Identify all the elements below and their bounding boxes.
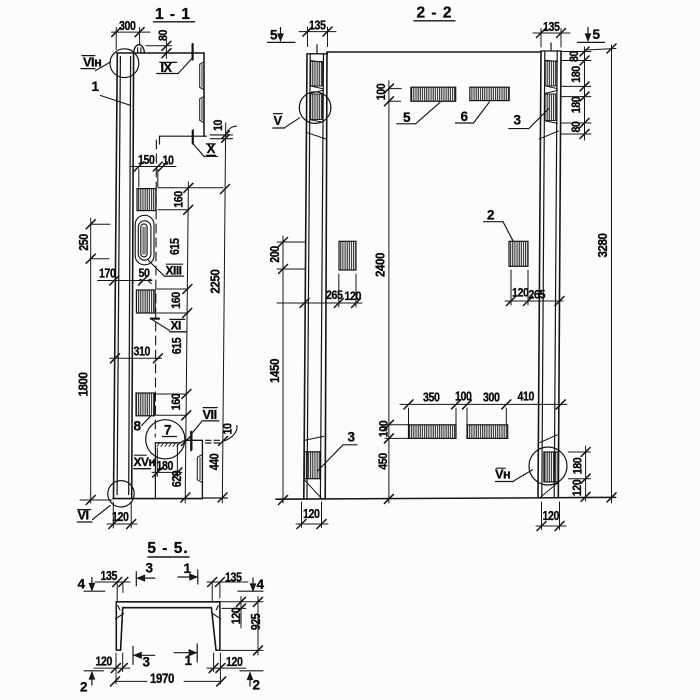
svg-text:1 - 1: 1 - 1 <box>155 6 191 23</box>
svg-text:1970: 1970 <box>150 671 174 686</box>
svg-text:160: 160 <box>172 191 186 208</box>
svg-text:1: 1 <box>185 653 193 668</box>
svg-text:4: 4 <box>78 577 86 592</box>
svg-text:V: V <box>274 113 283 128</box>
svg-text:150: 150 <box>138 152 155 167</box>
svg-text:100: 100 <box>374 83 388 100</box>
svg-text:120: 120 <box>112 509 129 524</box>
svg-text:265: 265 <box>326 288 343 302</box>
svg-text:3: 3 <box>514 113 522 128</box>
svg-text:5: 5 <box>403 110 411 125</box>
svg-text:VIн: VIн <box>83 55 101 70</box>
svg-text:5: 5 <box>270 28 278 43</box>
svg-text:3: 3 <box>146 561 154 576</box>
svg-text:2250: 2250 <box>208 269 223 293</box>
svg-text:3280: 3280 <box>595 233 610 257</box>
svg-text:Vн: Vн <box>495 467 510 482</box>
svg-text:10: 10 <box>163 153 174 168</box>
svg-text:2: 2 <box>487 208 494 223</box>
svg-text:100: 100 <box>377 420 391 437</box>
svg-text:120: 120 <box>345 289 362 303</box>
svg-text:160: 160 <box>169 292 183 309</box>
svg-text:3: 3 <box>143 655 151 670</box>
svg-text:180: 180 <box>569 66 583 83</box>
svg-text:VI: VI <box>78 508 89 523</box>
svg-text:265: 265 <box>529 288 546 302</box>
svg-text:135: 135 <box>309 18 326 33</box>
svg-text:120: 120 <box>543 508 560 523</box>
svg-text:10: 10 <box>221 423 235 435</box>
svg-text:XI: XI <box>171 319 182 333</box>
svg-text:250: 250 <box>76 234 91 251</box>
svg-text:1800: 1800 <box>76 372 91 396</box>
svg-text:300: 300 <box>483 390 500 405</box>
svg-text:120: 120 <box>226 654 243 669</box>
svg-text:120: 120 <box>512 286 529 300</box>
svg-text:120: 120 <box>570 479 584 496</box>
svg-text:135: 135 <box>543 19 560 34</box>
svg-text:50: 50 <box>139 266 151 280</box>
svg-text:450: 450 <box>376 453 390 470</box>
svg-text:5 - 5.: 5 - 5. <box>147 540 188 557</box>
svg-text:120: 120 <box>229 607 243 624</box>
svg-text:100: 100 <box>455 389 472 404</box>
svg-text:170: 170 <box>99 266 116 281</box>
svg-text:XIII: XIII <box>166 264 182 278</box>
svg-text:615: 615 <box>169 337 184 354</box>
svg-text:10: 10 <box>211 119 225 131</box>
svg-text:440: 440 <box>207 453 222 470</box>
svg-text:X: X <box>207 141 216 156</box>
svg-text:6: 6 <box>461 109 469 124</box>
svg-text:2: 2 <box>80 680 87 695</box>
svg-text:310: 310 <box>134 344 151 359</box>
svg-text:160: 160 <box>169 393 183 410</box>
svg-text:2400: 2400 <box>373 253 388 277</box>
svg-text:615: 615 <box>167 238 182 255</box>
svg-text:IX: IX <box>161 60 173 75</box>
svg-text:135: 135 <box>101 568 118 583</box>
svg-text:3: 3 <box>348 430 356 445</box>
svg-text:1450: 1450 <box>267 359 282 383</box>
svg-text:2: 2 <box>253 678 260 693</box>
svg-text:120: 120 <box>303 506 320 521</box>
svg-text:80: 80 <box>567 50 581 62</box>
svg-text:925: 925 <box>248 613 263 630</box>
svg-text:300: 300 <box>119 18 136 33</box>
svg-text:5: 5 <box>593 27 601 42</box>
svg-text:80: 80 <box>156 29 170 41</box>
svg-text:135: 135 <box>225 570 242 585</box>
svg-text:200: 200 <box>267 246 282 263</box>
svg-text:350: 350 <box>423 390 440 405</box>
svg-text:80: 80 <box>569 121 583 133</box>
svg-text:1: 1 <box>184 561 192 576</box>
svg-text:7: 7 <box>164 423 171 438</box>
svg-text:4: 4 <box>257 577 265 592</box>
svg-text:VII: VII <box>203 407 217 422</box>
svg-text:180: 180 <box>571 457 585 474</box>
svg-text:180: 180 <box>569 96 583 113</box>
svg-text:120: 120 <box>96 654 113 669</box>
svg-text:180: 180 <box>157 458 174 473</box>
svg-text:410: 410 <box>518 388 535 403</box>
svg-text:2 - 2: 2 - 2 <box>416 5 452 22</box>
svg-text:1: 1 <box>92 79 100 94</box>
svg-text:8: 8 <box>134 419 142 434</box>
